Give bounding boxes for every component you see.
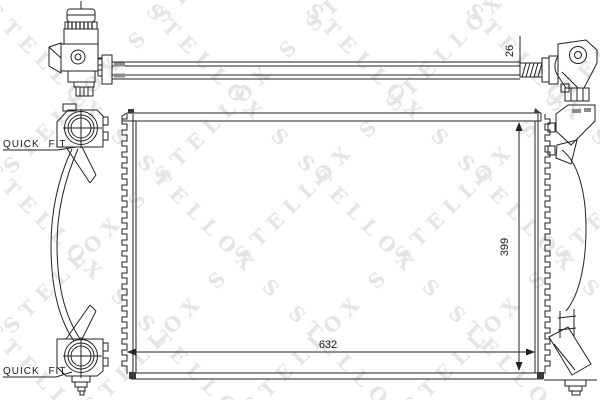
- dim-depth-label: 26: [504, 45, 516, 57]
- neck-bracket: [49, 43, 61, 73]
- right-inlet-fitting: [520, 40, 597, 101]
- tank-clip: [556, 140, 577, 164]
- bottom-edge-tab: [129, 372, 136, 379]
- bar-end-bracket: [102, 55, 112, 84]
- quick-fit-label-top: QUICK FIT: [3, 139, 66, 150]
- outlet-pipe: [544, 327, 597, 395]
- core-bottom-edge: [129, 372, 544, 379]
- dim-height-label: 399: [499, 238, 511, 256]
- dim-width-label: 632: [319, 339, 337, 351]
- fitting-housing: [558, 40, 597, 88]
- quick-fit-callouts: QUICK FIT QUICK FIT: [3, 139, 76, 377]
- top-view: 26: [49, 1, 597, 101]
- core-top-edge: [122, 108, 541, 121]
- bracket-slot: [584, 108, 591, 112]
- tank-curve: [562, 150, 586, 311]
- depth-dimension: 26: [504, 36, 520, 76]
- left-tank-outline: [51, 149, 80, 341]
- top-edge-tab: [534, 108, 541, 113]
- quick-fit-label-bottom: QUICK FIT: [3, 366, 66, 377]
- fitting-boss: [570, 47, 587, 64]
- bottom-edge-tab: [537, 372, 544, 379]
- right-tank: [544, 105, 597, 395]
- front-view: 399 632 QUICK FIT QUICK FIT: [3, 104, 597, 395]
- bar-clip: [114, 63, 125, 67]
- catalog-drawing-page: S STELLOX S STELLOX S STELLOX S STELLOX …: [0, 0, 600, 400]
- neck-boss-plate: [61, 44, 98, 71]
- quick-fit-connector-bottom: [57, 305, 108, 395]
- width-dimension: 632: [127, 339, 535, 356]
- bracket-slot: [572, 109, 581, 113]
- core-left-serrated-edge: [122, 114, 136, 374]
- drain-plug: [72, 376, 90, 395]
- neck-lower-body: [68, 71, 95, 82]
- top-view-bar: [112, 62, 520, 79]
- neck-boss: [71, 50, 85, 64]
- height-dimension: 399: [499, 122, 523, 371]
- bar-clip: [114, 74, 125, 78]
- radiator-technical-diagram: 26: [0, 0, 600, 400]
- side-clip: [548, 146, 555, 155]
- top-edge-tab: [128, 109, 134, 113]
- filler-neck: [49, 1, 112, 96]
- neck-upper-body: [64, 29, 98, 44]
